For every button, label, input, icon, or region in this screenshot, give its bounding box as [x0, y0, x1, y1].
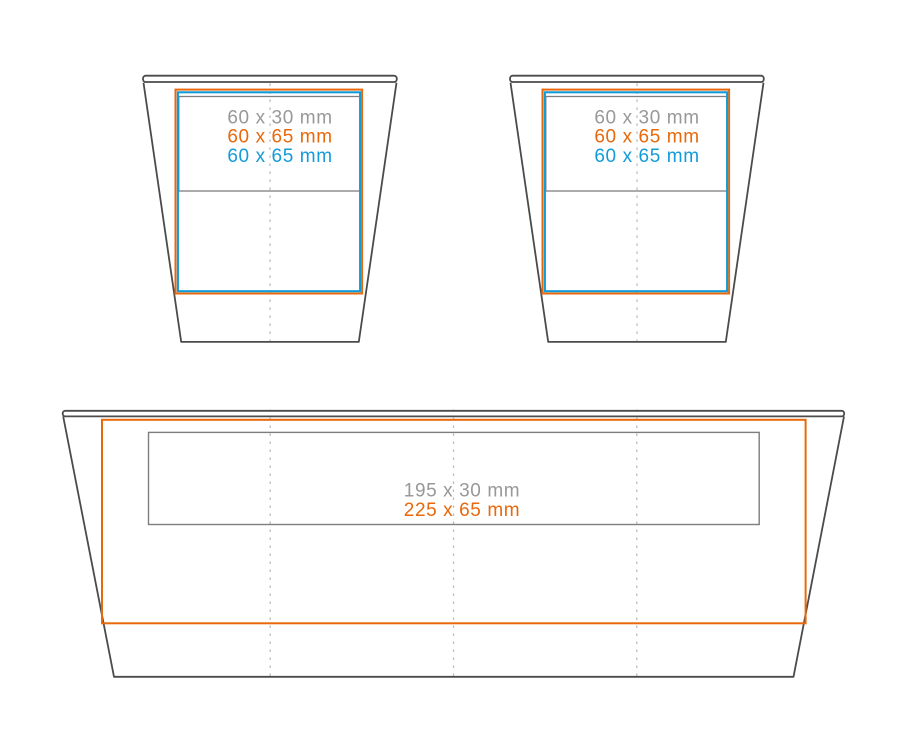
svg-text:195 x 30 mm: 195 x 30 mm [404, 481, 520, 502]
svg-text:60 x 30 mm: 60 x 30 mm [594, 107, 699, 128]
svg-text:60 x 65 mm: 60 x 65 mm [227, 127, 332, 148]
svg-text:225 x 65 mm: 225 x 65 mm [404, 500, 520, 521]
svg-text:60 x 65 mm: 60 x 65 mm [594, 146, 699, 167]
svg-text:60 x 65 mm: 60 x 65 mm [227, 146, 332, 167]
svg-text:60 x 30 mm: 60 x 30 mm [227, 107, 332, 128]
svg-text:60 x 65 mm: 60 x 65 mm [594, 127, 699, 148]
